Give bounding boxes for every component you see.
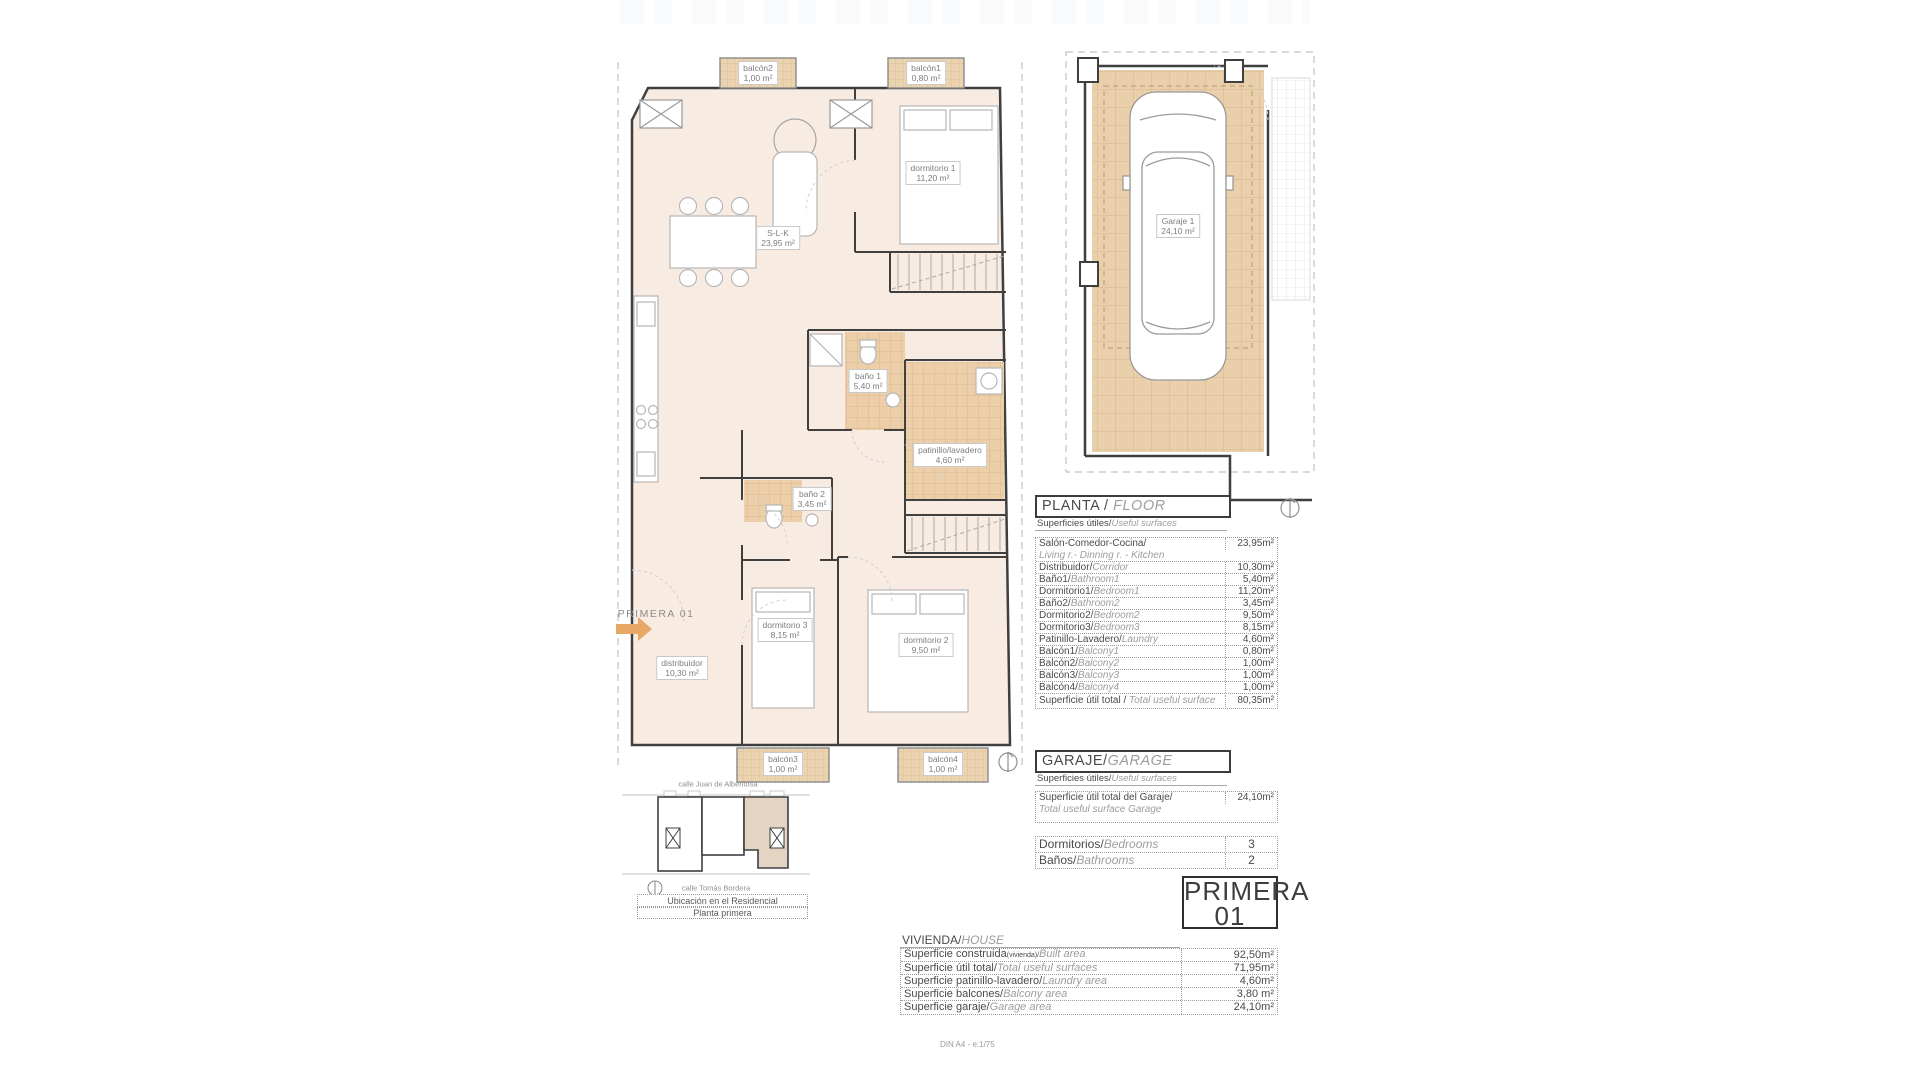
table-row: Balcón1/Balcony1 0,80m² — [1036, 646, 1277, 658]
table-row: Superficie patinillo-lavadero/Laundry ar… — [901, 975, 1277, 988]
planta-table: Salón-Comedor-Cocina/Living r.- Dinning … — [1035, 537, 1278, 709]
unit-number-line2: 01 — [1184, 904, 1276, 929]
table-row: Distribuidor/Corridor 10,30m² — [1036, 562, 1277, 574]
room-label-dormitorio1: dormitorio 1 11,20 m² — [906, 161, 961, 185]
table-row: Balcón2/Balcony2 1,00m² — [1036, 658, 1277, 670]
room-label-slk: S-L-K 23,95 m² — [756, 226, 800, 250]
vivienda-table: Superficie construida(vivienda)/Built ar… — [900, 948, 1278, 1015]
street-name-bottom: calle Tomás Bordera — [682, 884, 750, 893]
table-row: Baño2/Bathroom2 3,45m² — [1036, 598, 1277, 610]
room-label-balcon3: balcón3 1,00 m² — [763, 752, 803, 776]
bathrooms-row: Baños/Bathrooms 2 — [1036, 853, 1277, 869]
room-label-balcon4: balcón4 1,00 m² — [923, 752, 963, 776]
room-label-bano2: baño 2 3,45 m² — [793, 487, 832, 511]
vivienda-header: VIVIENDA/HOUSE — [900, 933, 1180, 948]
table-row: Superficie construida(vivienda)/Built ar… — [901, 949, 1277, 962]
compass-icon — [1281, 498, 1299, 518]
table-row: Balcón3/Balcony3 1,00m² — [1036, 670, 1277, 682]
scale-note: DIN A4 - e:1/75 — [940, 1040, 995, 1049]
planta-total-row: Superficie útil total / Total useful sur… — [1036, 694, 1277, 708]
compass-icon — [648, 881, 662, 895]
minimap-caption-1: Ubicación en el Residencial — [637, 894, 808, 907]
room-label-dormitorio3: dormitorio 3 8,15 m² — [758, 618, 813, 642]
unit-number-box: PRIMERA 01 — [1182, 876, 1278, 929]
location-minimap — [622, 791, 810, 895]
room-label-dormitorio2: dormitorio 2 9,50 m² — [899, 633, 954, 657]
table-row: Baño1/Bathroom1 5,40m² — [1036, 574, 1277, 586]
table-row: Patinillo-Lavadero/Laundry 4,60m² — [1036, 634, 1277, 646]
table-row: Salón-Comedor-Cocina/Living r.- Dinning … — [1036, 538, 1277, 562]
page: balcón2 1,00 m² balcón1 0,80 m² dormitor… — [0, 0, 1920, 1080]
washer-icon — [976, 368, 1002, 394]
bedrooms-row: Dormitorios/Bedrooms 3 — [1036, 837, 1277, 853]
room-label-balcon2: balcón2 1,00 m² — [738, 61, 778, 85]
table-row: Balcón4/Balcony4 1,00m² — [1036, 682, 1277, 694]
table-row: Superficie balcones/Balcony area 3,80 m² — [901, 988, 1277, 1001]
unit-entrance-label: PRIMERA 01 — [618, 608, 695, 620]
minimap-buildings — [658, 791, 788, 871]
table-row: Superficie útil total/Total useful surfa… — [901, 962, 1277, 975]
room-label-distribuidor: distribuidor 10,30 m² — [656, 656, 708, 680]
compass-icon — [999, 752, 1017, 772]
garage-plan — [1078, 58, 1312, 518]
room-label-bano1: baño 1 5,40 m² — [849, 369, 888, 393]
garaje-subtitle: Superficies útiles/Useful surfaces — [1035, 773, 1227, 786]
street-name-top: calle Juan de Albentosa — [678, 780, 757, 789]
room-label-balcon1: balcón1 0,80 m² — [906, 61, 946, 85]
planta-header: PLANTA / FLOOR — [1035, 495, 1231, 518]
table-row: Dormitorio2/Bedroom2 9,50m² — [1036, 610, 1277, 622]
room-label-garaje1: Garaje 1 24,10 m² — [1156, 214, 1200, 238]
garaje-header: GARAJE/GARAGE — [1035, 750, 1231, 773]
planta-subtitle: Superficies útiles/Useful surfaces — [1035, 518, 1227, 531]
table-row: Superficie útil total del Garaje/Total u… — [1036, 792, 1277, 822]
minimap-caption-2: Planta primera — [637, 907, 808, 919]
table-row: Dormitorio3/Bedroom3 8,15m² — [1036, 622, 1277, 634]
table-row: Dormitorio1/Bedroom1 11,20m² — [1036, 586, 1277, 598]
garaje-table: Superficie útil total del Garaje/Total u… — [1035, 791, 1278, 823]
counts-table: Dormitorios/Bedrooms 3 Baños/Bathrooms 2 — [1035, 836, 1278, 869]
table-row: Superficie garaje/Garage area 24,10m² — [901, 1001, 1277, 1014]
neighbor-grid — [1272, 78, 1310, 300]
room-label-patinillo: patinillo/lavadero 4,60 m² — [913, 443, 987, 467]
